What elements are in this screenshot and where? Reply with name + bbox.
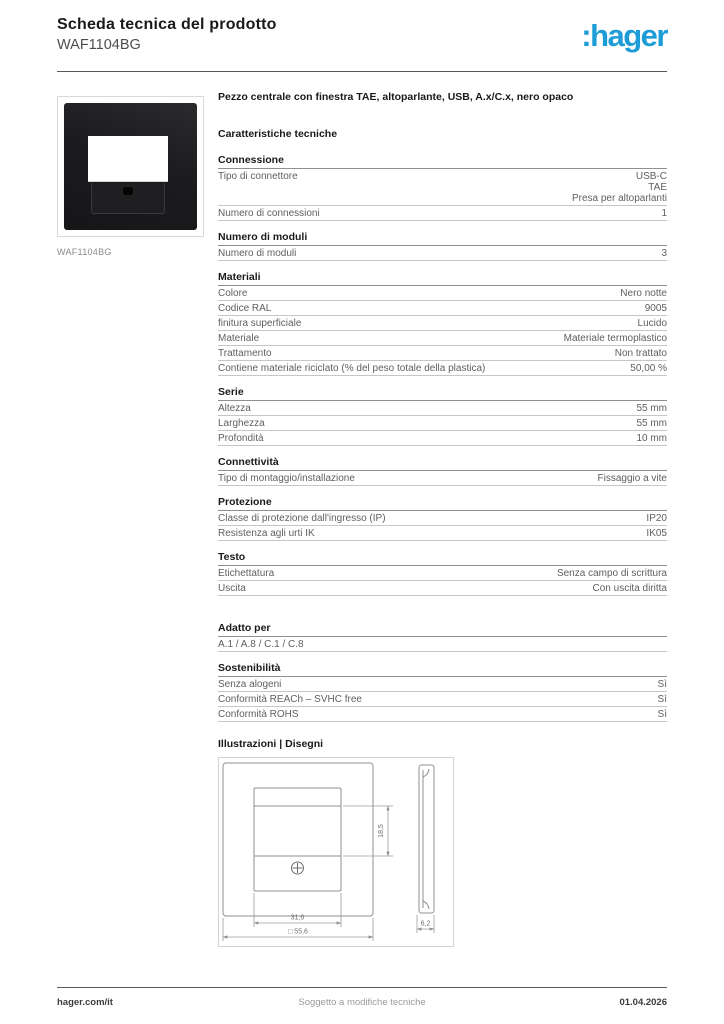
row-value: USB-C [572,171,667,182]
table-row: Tipo di montaggio/installazione Fissaggi… [218,471,667,486]
wall-plate-image [64,103,197,230]
row-values: Lucido [638,318,667,329]
main-content: Pezzo centrale con finestra TAE, altopar… [218,91,667,947]
row-label: Trattamento [218,348,284,359]
row-label: Altezza [218,403,263,414]
dimension-label-window-height: 18,5 [378,824,385,838]
product-code: WAF1104BG [57,37,667,53]
row-label: Numero di connessioni [218,208,332,219]
row-values: Materiale termoplastico [564,333,667,344]
table-row: Colore Nero notte [218,286,667,301]
row-label: Numero di moduli [218,248,308,259]
section-rows: Etichettatura Senza campo di scrittura U… [218,566,667,596]
table-row: Altezza 55 mm [218,401,667,416]
row-label: Contiene materiale riciclato (% del peso… [218,363,497,374]
table-row: Resistenza agli urti IK IK05 [218,526,667,541]
row-value: Con uscita diritta [593,583,667,594]
row-values: 50,00 % [630,363,667,374]
row-value: Non trattato [615,348,667,359]
table-row: Numero di moduli 3 [218,246,667,261]
row-values: 1 [661,208,667,219]
row-label: Etichettatura [218,568,286,579]
sections: Connessione Tipo di connettore USB-CTAEP… [218,155,667,722]
page-footer: Soggetto a modifiche tecniche hager.com/… [57,987,667,1008]
row-values: Senza campo di scrittura [557,568,667,579]
row-values: USB-CTAEPresa per altoparlanti [572,171,667,204]
row-value: Senza campo di scrittura [557,568,667,579]
table-row: Codice RAL 9005 [218,301,667,316]
spec-section: Protezione Classe di protezione dall'ing… [218,497,667,541]
section-title: Numero di moduli [218,232,667,246]
section-rows: Altezza 55 mm Larghezza 55 mm Profondità… [218,401,667,446]
row-label: Classe di protezione dall'ingresso (IP) [218,513,398,524]
row-values: Sì [658,709,667,720]
row-value: 1 [661,208,667,219]
table-row: A.1 / A.8 / C.1 / C.8 [218,637,667,652]
section-rows: Tipo di montaggio/installazione Fissaggi… [218,471,667,486]
row-value: 3 [661,248,667,259]
dimension-label-depth: 6,2 [421,921,431,928]
row-value: Sì [658,679,667,690]
row-label: Materiale [218,333,271,344]
section-title: Protezione [218,497,667,511]
table-row: Profondità 10 mm [218,431,667,446]
product-image-caption: WAF1104BG [57,247,204,257]
section-title: Sostenibilità [218,663,667,677]
row-values: 9005 [645,303,667,314]
section-rows: A.1 / A.8 / C.1 / C.8 [218,637,667,652]
row-value: Fissaggio a vite [598,473,667,484]
hager-logo: :hager [581,18,667,54]
screw-icon [292,862,304,874]
row-values: Sì [658,679,667,690]
table-row: Numero di connessioni 1 [218,206,667,221]
table-row: Materiale Materiale termoplastico [218,331,667,346]
plate-window [88,136,168,182]
product-figure: WAF1104BG [57,96,204,257]
table-row: Senza alogeni Sì [218,677,667,692]
row-label: Profondità [218,433,276,444]
row-value: 10 mm [636,433,667,444]
spec-section: Connessione Tipo di connettore USB-CTAEP… [218,155,667,221]
spec-section: Numero di moduli Numero di moduli 3 [218,232,667,261]
row-values: Fissaggio a vite [598,473,667,484]
dimension-label-outer-width: □ 55,6 [288,929,308,936]
row-value: 55 mm [636,418,667,429]
row-value: Presa per altoparlanti [572,193,667,204]
row-value: 50,00 % [630,363,667,374]
row-value: IP20 [646,513,667,524]
row-label: Colore [218,288,259,299]
section-title: Connessione [218,155,667,169]
table-row: Contiene materiale riciclato (% del peso… [218,361,667,376]
row-values: 3 [661,248,667,259]
spec-section: Materiali Colore Nero notte Codice RAL 9… [218,272,667,376]
row-label: Tipo di montaggio/installazione [218,473,367,484]
spec-section: Connettività Tipo di montaggio/installaz… [218,457,667,486]
row-values: Con uscita diritta [593,583,667,594]
product-description: Pezzo centrale con finestra TAE, altopar… [218,91,667,104]
row-values: 10 mm [636,433,667,444]
row-value: Nero notte [620,288,667,299]
product-image [57,96,204,237]
row-label: Codice RAL [218,303,283,314]
row-value: Sì [658,709,667,720]
row-values: Nero notte [620,288,667,299]
row-values: Non trattato [615,348,667,359]
front-view [223,763,373,916]
row-values: Sì [658,694,667,705]
row-value: 9005 [645,303,667,314]
page-header: Scheda tecnica del prodotto WAF1104BG :h… [57,16,667,53]
row-values: IP20 [646,513,667,524]
section-rows: Colore Nero notte Codice RAL 9005 finitu… [218,286,667,376]
row-value: Sì [658,694,667,705]
table-row: Trattamento Non trattato [218,346,667,361]
table-row: Classe di protezione dall'ingresso (IP) … [218,511,667,526]
table-row: Conformità REACh – SVHC free Sì [218,692,667,707]
technical-drawing: 18,5 31,6 □ 55,6 6,2 [218,757,454,947]
row-label: Tipo di connettore [218,171,310,182]
spec-section: Serie Altezza 55 mm Larghezza 55 mm Prof… [218,387,667,446]
row-label: Conformità ROHS [218,709,311,720]
row-value: Materiale termoplastico [564,333,667,344]
table-row: Tipo di connettore USB-CTAEPresa per alt… [218,169,667,206]
section-title: Serie [218,387,667,401]
header-divider [57,71,667,72]
section-title: Connettività [218,457,667,471]
section-title: Adatto per [218,623,667,637]
row-label: Larghezza [218,418,277,429]
table-row: finitura superficiale Lucido [218,316,667,331]
row-label: Senza alogeni [218,679,293,690]
row-values: IK05 [646,528,667,539]
characteristics-heading: Caratteristiche tecniche [218,128,667,141]
document-title: Scheda tecnica del prodotto [57,16,667,34]
row-value: Lucido [638,318,667,329]
row-label: Resistenza agli urti IK [218,528,327,539]
section-rows: Tipo di connettore USB-CTAEPresa per alt… [218,169,667,221]
plate-hole [123,187,133,195]
section-title: Materiali [218,272,667,286]
spec-section: Sostenibilità Senza alogeni Sì Conformit… [218,663,667,722]
section-rows: Numero di moduli 3 [218,246,667,261]
row-value: IK05 [646,528,667,539]
spec-section: Testo Etichettatura Senza campo di scrit… [218,552,667,596]
dimension-label-inner-width: 31,6 [291,915,305,922]
row-value: TAE [572,182,667,193]
spec-section: Adatto per A.1 / A.8 / C.1 / C.8 [218,623,667,652]
table-row: Etichettatura Senza campo di scrittura [218,566,667,581]
illustrations-heading: Illustrazioni | Disegni [218,738,667,751]
datasheet-page: Scheda tecnica del prodotto WAF1104BG :h… [0,0,724,1024]
section-rows: Senza alogeni Sì Conformità REACh – SVHC… [218,677,667,722]
row-values: 55 mm [636,403,667,414]
row-label: finitura superficiale [218,318,313,329]
section-rows: Classe di protezione dall'ingresso (IP) … [218,511,667,541]
table-row: Conformità ROHS Sì [218,707,667,722]
table-row: Uscita Con uscita diritta [218,581,667,596]
row-label: A.1 / A.8 / C.1 / C.8 [218,639,316,650]
footer-note: Soggetto a modifiche tecniche [57,997,667,1008]
side-view [419,765,434,913]
row-label: Conformità REACh – SVHC free [218,694,374,705]
row-value: 55 mm [636,403,667,414]
row-values: 55 mm [636,418,667,429]
row-label: Uscita [218,583,258,594]
section-title: Testo [218,552,667,566]
table-row: Larghezza 55 mm [218,416,667,431]
plate-flap [91,183,165,214]
